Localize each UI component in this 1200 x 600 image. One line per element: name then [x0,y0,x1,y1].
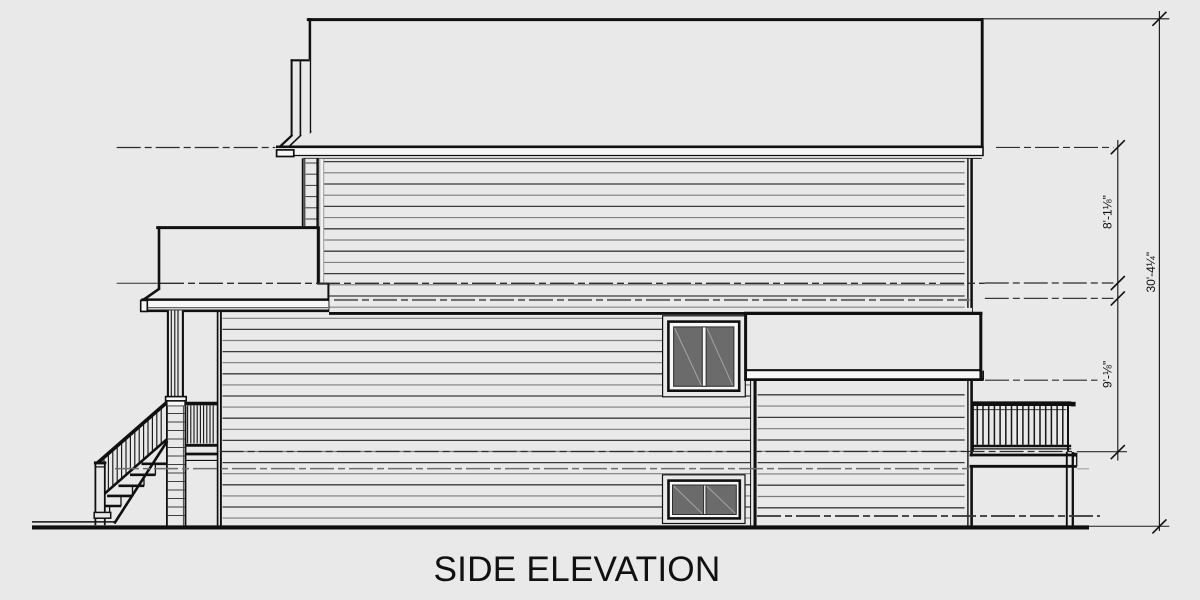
svg-text:9'-⅛": 9'-⅛" [1101,361,1115,388]
svg-text:30'-4¼": 30'-4¼" [1144,252,1158,293]
svg-text:8'-1⅛": 8'-1⅛" [1101,195,1115,229]
